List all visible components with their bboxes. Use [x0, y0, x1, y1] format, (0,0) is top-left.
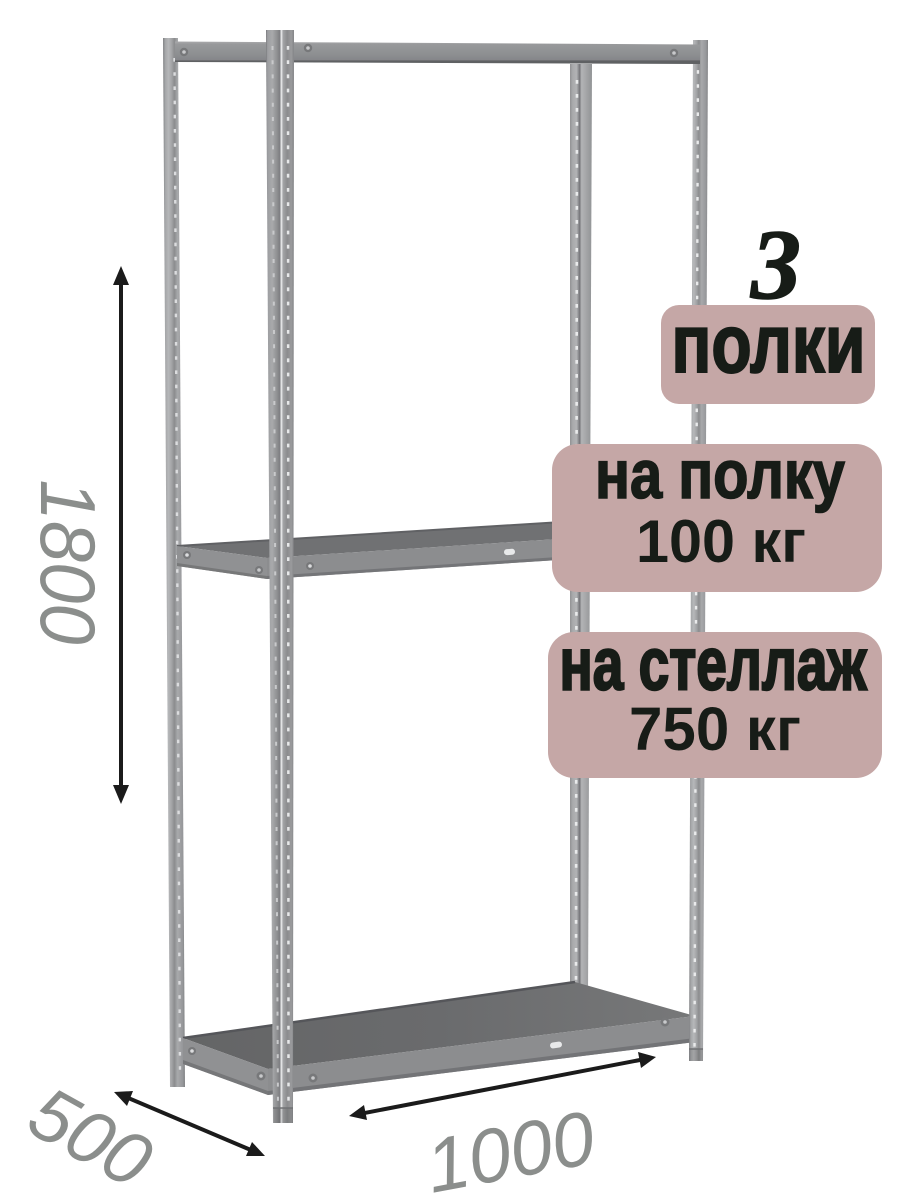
svg-text:100 кг: 100 кг [636, 508, 806, 575]
svg-text:на стеллаж: на стеллаж [560, 623, 868, 706]
svg-text:полки: полки [672, 297, 866, 390]
svg-text:750 кг: 750 кг [629, 695, 801, 763]
svg-text:на полку: на полку [595, 436, 845, 513]
svg-text:1800: 1800 [24, 480, 112, 645]
